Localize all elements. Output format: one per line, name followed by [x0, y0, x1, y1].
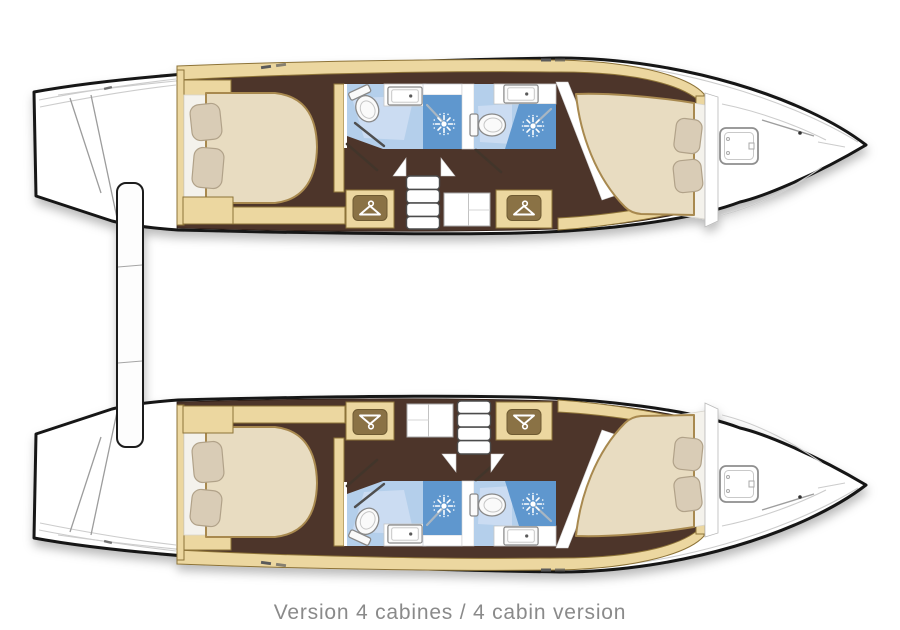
caption: Version 4 cabines / 4 cabin version — [274, 601, 627, 624]
catamaran-plan — [34, 58, 866, 572]
boat-floor-plan-page: Version 4 cabines / 4 cabin version — [0, 0, 900, 630]
boat-floor-plan: Version 4 cabines / 4 cabin version — [0, 0, 900, 630]
aft-crossbeam — [117, 183, 143, 447]
